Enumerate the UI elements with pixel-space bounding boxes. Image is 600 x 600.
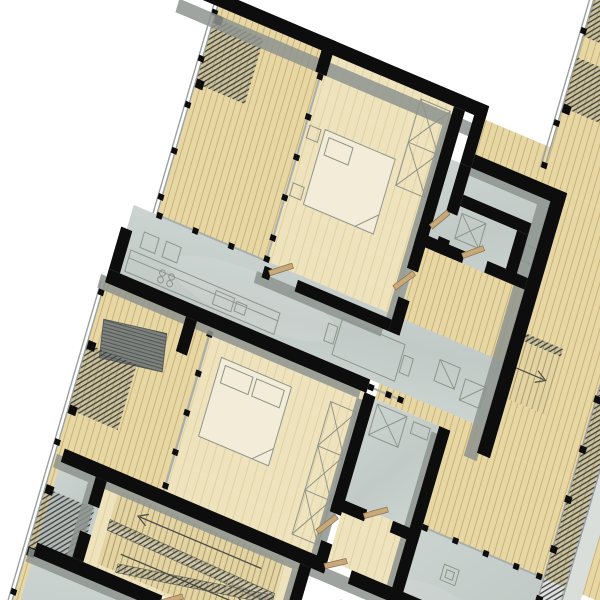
- floorplan-svg: [0, 0, 600, 600]
- floorplan-rendering: [0, 0, 600, 600]
